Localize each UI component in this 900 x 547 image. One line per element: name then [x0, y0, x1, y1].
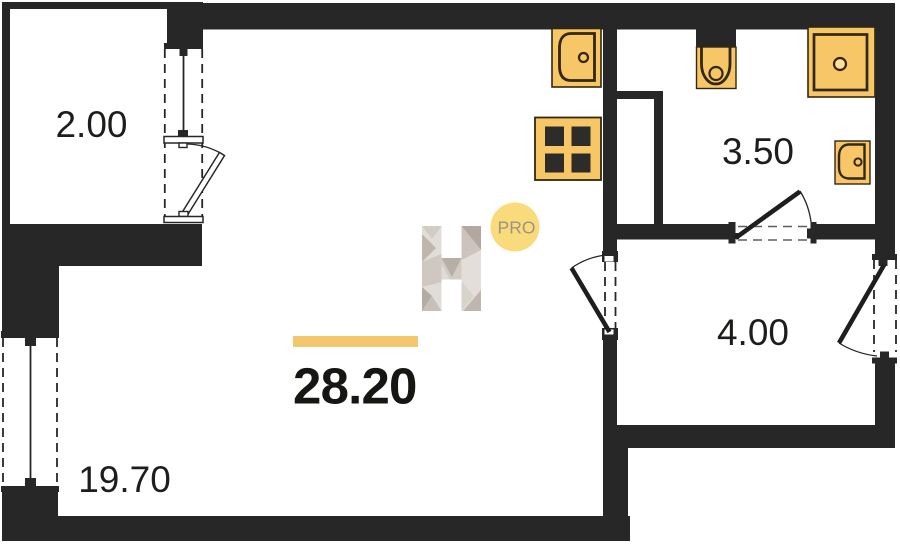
svg-text:2.00: 2.00 — [55, 104, 127, 145]
svg-text:28.20: 28.20 — [293, 358, 417, 415]
svg-text:3.50: 3.50 — [722, 131, 794, 172]
svg-text:PRO: PRO — [498, 218, 536, 238]
svg-text:4.00: 4.00 — [717, 312, 789, 353]
svg-text:19.70: 19.70 — [78, 459, 171, 500]
